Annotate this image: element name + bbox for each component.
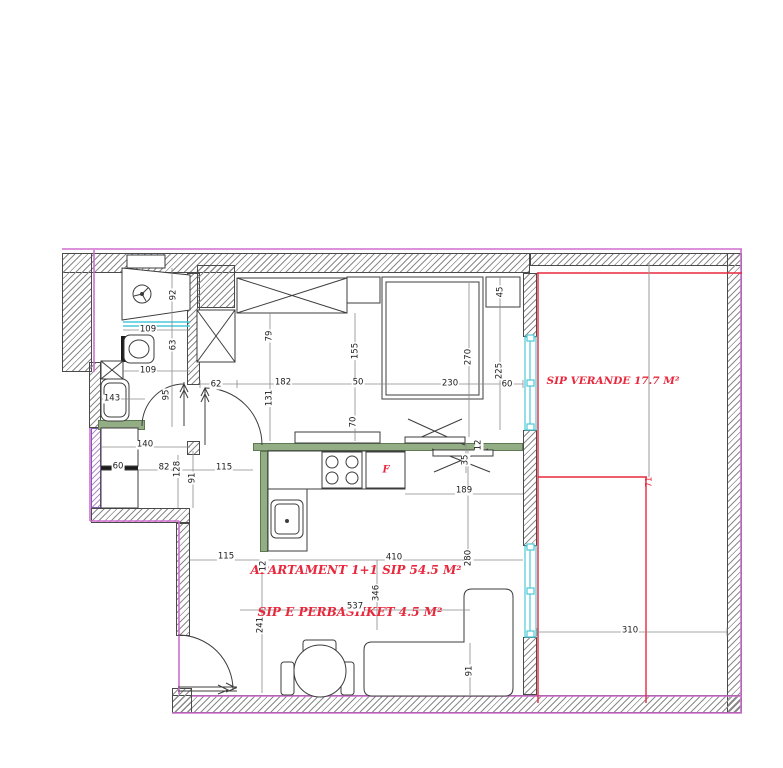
dimension-label: 182 xyxy=(274,379,292,388)
dimension-label: 115 xyxy=(217,553,235,562)
room-area-label: SIP VERANDE 17.7 M² xyxy=(547,375,680,387)
dimension-label: 71 xyxy=(646,476,655,489)
dimension-label: 230 xyxy=(441,380,459,389)
bed xyxy=(382,277,483,399)
entry-door xyxy=(178,635,237,694)
dimension-label: 143 xyxy=(103,395,121,404)
veranda-red-boundary xyxy=(537,273,742,703)
stove xyxy=(322,452,362,488)
dimension-label: 12 xyxy=(475,439,484,452)
upper-cabinet xyxy=(295,432,380,443)
dimension-label: 82 xyxy=(158,464,171,473)
dimension-label: 225 xyxy=(496,362,505,380)
bedroom-window xyxy=(525,335,536,430)
dimension-label: 95 xyxy=(163,389,172,402)
shaft-box xyxy=(101,361,123,379)
dimension-label: 45 xyxy=(497,286,506,299)
dimension-label: 109 xyxy=(139,367,157,376)
dimension-label: 63 xyxy=(170,339,179,352)
dimension-label: 35 xyxy=(462,454,471,467)
vent-unit xyxy=(122,255,190,320)
dimension-label: 60 xyxy=(501,381,514,390)
dimension-label: 12 xyxy=(260,560,269,573)
dimension-label: 241 xyxy=(257,616,266,634)
chair-left xyxy=(281,662,294,695)
dimension-label: 189 xyxy=(455,487,473,496)
dimension-label: 62 xyxy=(210,381,223,390)
dimension-label: 79 xyxy=(266,330,275,343)
dimension-label: 140 xyxy=(136,441,154,450)
entry-column-box xyxy=(197,310,235,362)
toilet xyxy=(124,335,154,363)
dimension-label: 310 xyxy=(621,627,639,636)
dimension-label: 270 xyxy=(465,348,474,366)
dimension-label: 109 xyxy=(139,326,157,335)
dimension-label: 50 xyxy=(352,379,365,388)
hall-door xyxy=(201,388,262,445)
dimension-label: 280 xyxy=(465,549,474,567)
dimension-label: 70 xyxy=(350,416,359,429)
dimension-label: 115 xyxy=(215,464,233,473)
floor-plan: F SIP VERANDE 17.7 M²APARTAMENT 1+1 SIP … xyxy=(0,0,783,768)
dimension-label: 128 xyxy=(174,460,183,478)
dimension-label: 60 xyxy=(112,463,125,472)
duct-box xyxy=(127,255,165,268)
room-area-label: APARTAMENT 1+1 SIP 54.5 M² xyxy=(251,563,462,577)
dimension-label: 537 xyxy=(346,603,364,612)
dimension-label: 131 xyxy=(266,389,275,407)
sink xyxy=(271,500,303,538)
fridge-label: F xyxy=(382,465,389,476)
dimension-label: 92 xyxy=(170,289,179,302)
dresser xyxy=(347,277,380,303)
dimension-label: 155 xyxy=(352,342,361,360)
dimension-label: 91 xyxy=(189,472,198,485)
dimension-label: 91 xyxy=(466,665,475,678)
dining-table xyxy=(281,640,354,697)
wardrobe xyxy=(237,278,347,313)
dimension-label: 346 xyxy=(373,584,382,602)
dimension-label: 410 xyxy=(385,554,403,563)
living-window xyxy=(525,544,536,637)
